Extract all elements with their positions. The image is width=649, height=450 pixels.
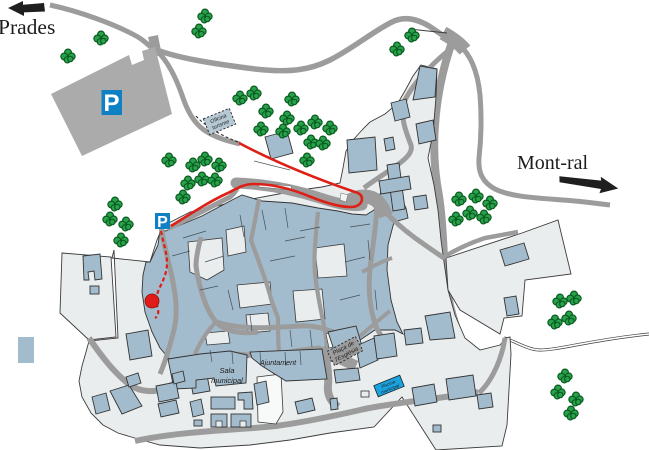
svg-text:municipal: municipal [211, 376, 243, 385]
svg-text:Prades: Prades [0, 15, 55, 39]
svg-text:Sala: Sala [219, 366, 234, 375]
svg-text:P: P [157, 214, 168, 231]
svg-text:P: P [103, 90, 119, 117]
svg-text:Ajuntament: Ajuntament [259, 358, 297, 367]
svg-text:Mont-ral: Mont-ral [517, 152, 589, 174]
